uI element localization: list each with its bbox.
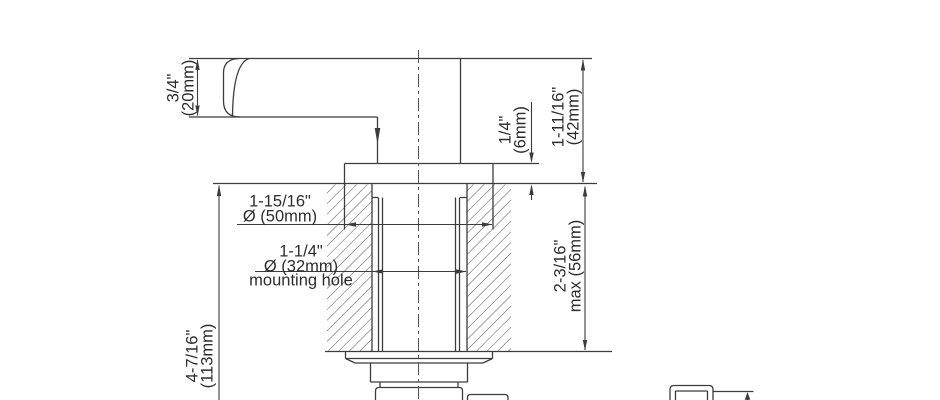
side-view-cap-outline bbox=[670, 386, 713, 400]
arrow-42mm-up bbox=[581, 59, 585, 70]
handle-end-cap bbox=[224, 59, 241, 118]
arrow-6mm-up bbox=[529, 184, 533, 195]
arrow-56mm-down bbox=[583, 340, 587, 351]
countertop-hatch-right bbox=[467, 185, 511, 352]
arrow-6mm-down bbox=[529, 153, 533, 164]
arrow-32mm-left bbox=[372, 269, 383, 273]
side-view-cap-inner bbox=[676, 391, 708, 400]
dim-label-escutcheon-diameter: 1-15/16" Ø (50mm) bbox=[243, 195, 317, 224]
drawing-linework bbox=[0, 0, 940, 400]
partial-part-bottom-center bbox=[468, 395, 509, 400]
dim-label-max-deck-thickness: 2-3/16" max (56mm) bbox=[554, 220, 583, 313]
dim-escutcheon-height-metric: (6mm) bbox=[513, 106, 528, 154]
dim-label-escutcheon-height: 1/4" (6mm) bbox=[499, 106, 528, 154]
technical-drawing-canvas: 3/4" (20mm) 1/4" (6mm) 1-11/16" (42mm) 2… bbox=[0, 0, 940, 400]
handle-cap-seam bbox=[233, 59, 250, 118]
arrow-56mm-up bbox=[583, 185, 587, 196]
dim-handle-height-metric: (20mm) bbox=[181, 60, 196, 117]
dim-label-handle-height: 3/4" (20mm) bbox=[167, 60, 196, 117]
arrow-side-view-up bbox=[745, 392, 750, 400]
arrow-42mm-down bbox=[581, 172, 585, 183]
dim-mounting-hole-note: mounting hole bbox=[249, 273, 353, 288]
dim-label-mounting-hole: 1-1/4" Ø (32mm) mounting hole bbox=[249, 244, 353, 288]
arrow-113mm-up bbox=[217, 185, 221, 197]
dim-max-thickness-metric: max (56mm) bbox=[568, 220, 583, 313]
arrow-32mm-right bbox=[456, 269, 467, 273]
dim-label-deck-to-handle-top: 1-11/16" (42mm) bbox=[552, 87, 581, 148]
dim-below-deck-metric: (113mm) bbox=[200, 324, 215, 389]
dim-deck-to-handle-metric: (42mm) bbox=[566, 87, 581, 148]
dim-escutcheon-dia-metric: Ø (50mm) bbox=[243, 209, 317, 224]
dim-label-below-deck-depth: 4-7/16" (113mm) bbox=[186, 324, 215, 389]
leader-arrow-body-edge bbox=[375, 128, 381, 144]
